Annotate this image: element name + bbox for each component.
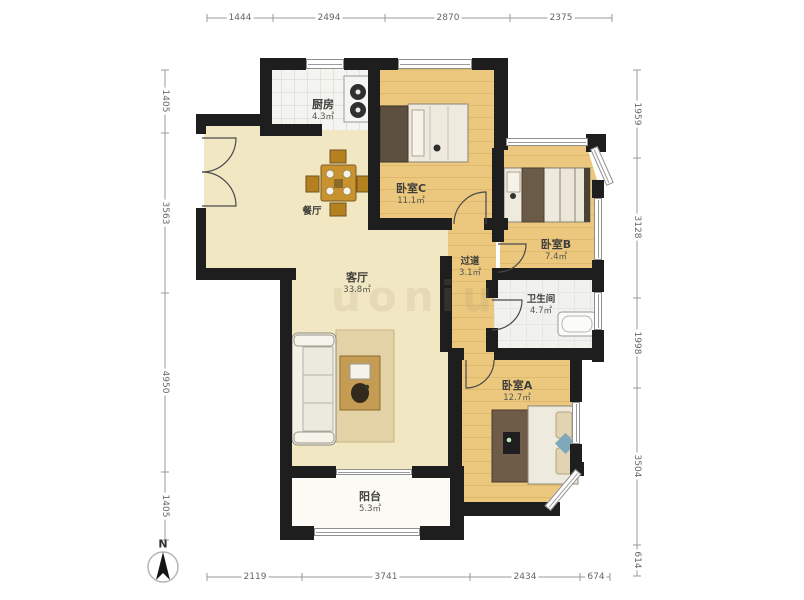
room-area: 4.7㎡ (527, 306, 556, 317)
room-area: 3.1㎡ (459, 268, 481, 279)
door-bedroom-c (454, 192, 486, 224)
dim-left-0: 1405 (160, 88, 170, 115)
room-name: 客厅 (343, 271, 370, 285)
room-label-bedroom-c: 卧室C 11.1㎡ (396, 182, 426, 206)
door-bedroom-a (466, 360, 494, 388)
room-label-hallway: 过道 3.1㎡ (459, 256, 481, 279)
room-name: 厨房 (312, 98, 334, 112)
room-name: 餐厅 (302, 206, 321, 218)
dim-right-0: 1959 (632, 101, 642, 128)
compass-north-label: N (158, 538, 167, 551)
north-arrow-icon (156, 552, 170, 580)
room-label-living: 客厅 33.8㎡ (343, 271, 370, 295)
room-label-kitchen: 厨房 4.3㎡ (312, 98, 334, 122)
dim-bottom-1: 3741 (373, 572, 400, 582)
room-name: 卧室C (396, 182, 426, 196)
room-area: 4.3㎡ (312, 112, 334, 123)
dim-bottom-3: 674 (585, 572, 606, 582)
dim-top-1: 2494 (316, 13, 343, 23)
dim-left-2: 4950 (160, 369, 170, 396)
room-area: 7.4㎡ (541, 252, 571, 263)
floorplan-canvas: 厨房 4.3㎡ 卧室C 11.1㎡ 卧室B 7.4㎡ 餐厅 客厅 33.8㎡ 过… (0, 0, 804, 600)
dim-top-3: 2375 (548, 13, 575, 23)
entry-door-leaf (202, 172, 236, 206)
watermark: uoniu (290, 272, 540, 321)
room-area: 11.1㎡ (396, 196, 426, 207)
dim-left-1: 3563 (160, 200, 170, 227)
room-name: 过道 (459, 256, 481, 268)
dim-right-4: 614 (632, 549, 642, 570)
room-label-bathroom: 卫生间 4.7㎡ (527, 294, 556, 317)
dim-bottom-0: 2119 (242, 572, 269, 582)
room-name: 卫生间 (527, 294, 556, 306)
dim-left-3: 1405 (160, 493, 170, 520)
room-label-bedroom-b: 卧室B 7.4㎡ (541, 238, 571, 262)
dim-top-0: 1444 (227, 13, 254, 23)
room-name: 阳台 (359, 490, 381, 504)
room-name: 卧室B (541, 238, 571, 252)
compass (148, 552, 178, 582)
room-label-balcony: 阳台 5.3㎡ (359, 490, 381, 514)
room-label-bedroom-a: 卧室A 12.7㎡ (502, 379, 533, 403)
dim-right-3: 3504 (632, 453, 642, 480)
room-area: 5.3㎡ (359, 504, 381, 515)
entry-door-leaf (202, 138, 236, 172)
dim-right-2: 1998 (632, 330, 642, 357)
dim-right-1: 3128 (632, 214, 642, 241)
dim-top-2: 2870 (435, 13, 462, 23)
room-name: 卧室A (502, 379, 533, 393)
door-bedroom-b (498, 244, 526, 272)
dim-bottom-2: 2434 (512, 572, 539, 582)
room-area: 33.8㎡ (343, 285, 370, 296)
room-label-dining: 餐厅 (302, 206, 321, 218)
room-area: 12.7㎡ (502, 393, 533, 404)
